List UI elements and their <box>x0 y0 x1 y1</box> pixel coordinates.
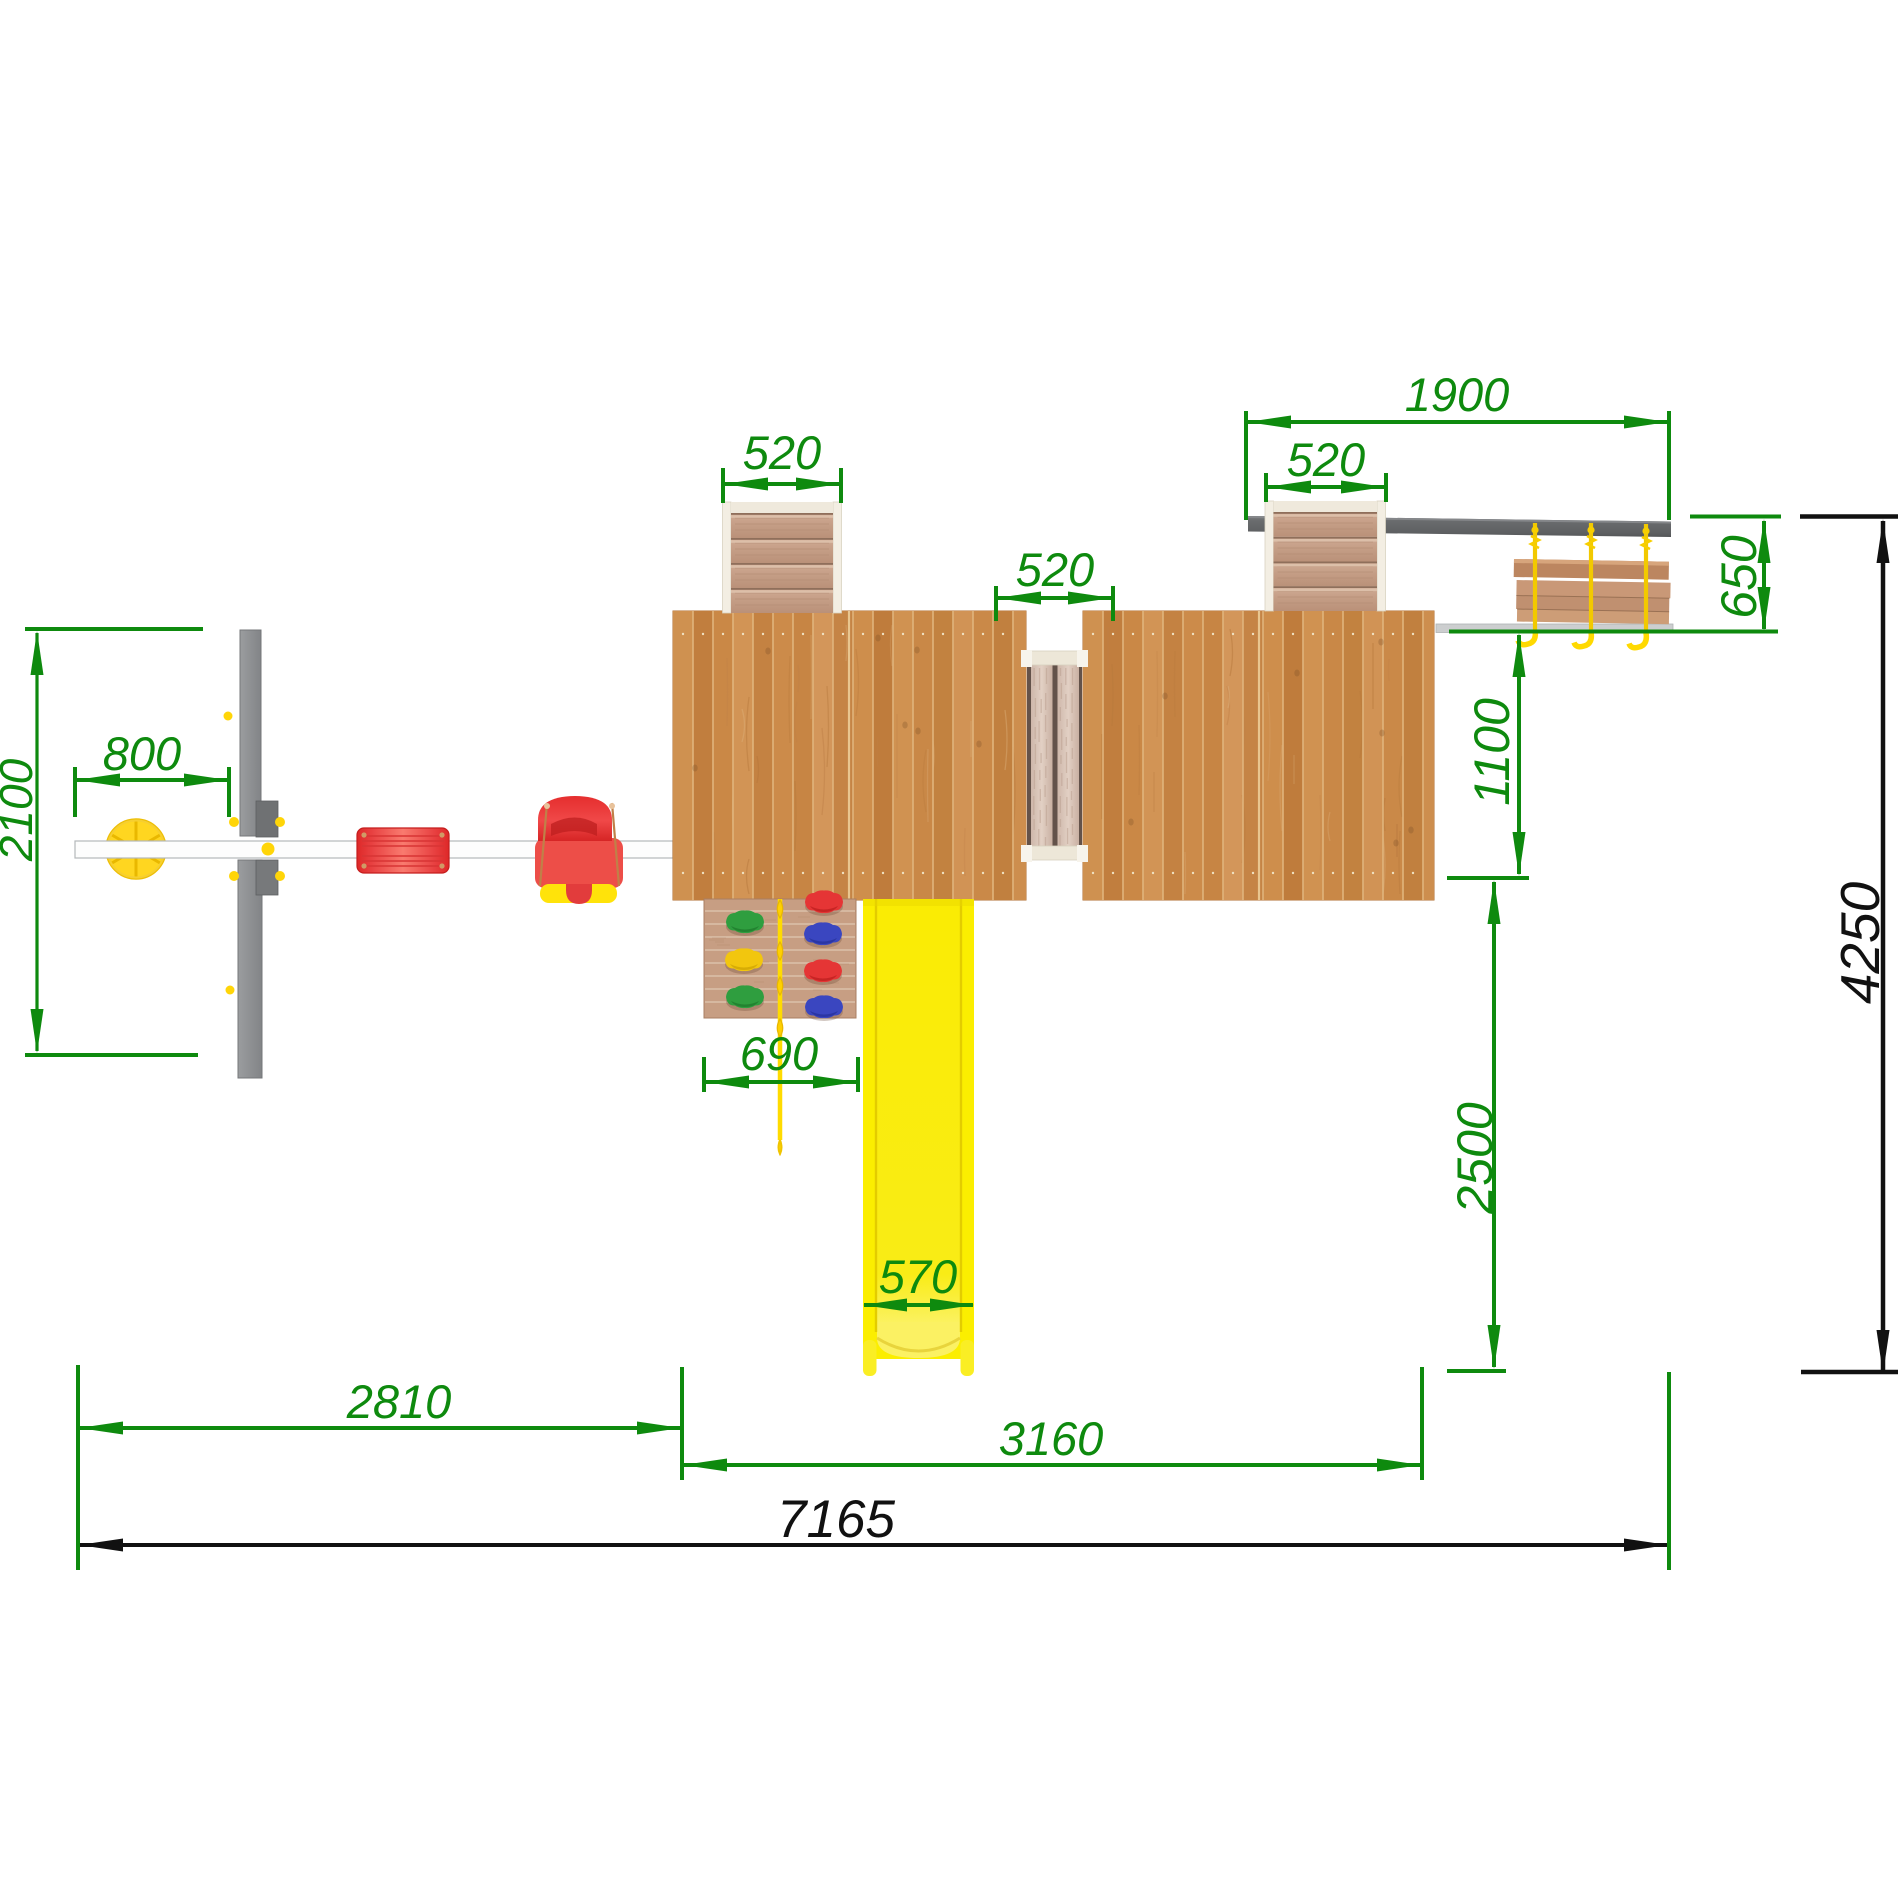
svg-text:2810: 2810 <box>346 1375 452 1428</box>
svg-text:520: 520 <box>743 426 821 479</box>
svg-text:570: 570 <box>879 1250 957 1303</box>
svg-text:800: 800 <box>103 727 181 780</box>
svg-text:4250: 4250 <box>1829 881 1891 1004</box>
svg-text:650: 650 <box>1711 535 1767 619</box>
svg-text:520: 520 <box>1016 543 1094 596</box>
svg-text:1100: 1100 <box>1464 698 1520 806</box>
svg-text:2500: 2500 <box>1447 1102 1503 1214</box>
svg-text:690: 690 <box>740 1027 818 1080</box>
svg-text:520: 520 <box>1287 433 1365 486</box>
svg-text:1900: 1900 <box>1405 368 1510 421</box>
svg-text:7165: 7165 <box>777 1490 895 1549</box>
svg-text:2100: 2100 <box>0 758 42 862</box>
svg-text:3160: 3160 <box>999 1412 1104 1465</box>
